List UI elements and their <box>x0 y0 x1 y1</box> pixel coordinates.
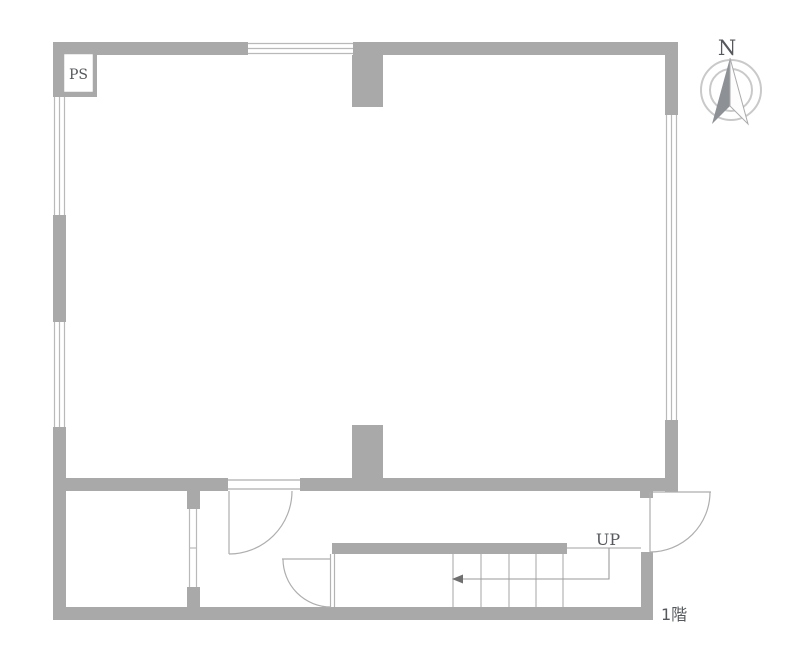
wall-right-top <box>665 42 678 115</box>
compass-rose: N <box>701 36 761 124</box>
wall-small-room-lower <box>187 587 200 607</box>
pipe-shaft: PS <box>63 53 94 93</box>
staircase: UP <box>331 530 642 607</box>
floor-plan: PS <box>0 0 787 651</box>
pillar-bottom <box>352 425 383 478</box>
window-right <box>667 115 677 420</box>
north-label: N <box>718 36 736 60</box>
sliding-door-small-room <box>190 509 197 587</box>
interior-walls <box>66 55 678 607</box>
wall-left-mid <box>53 215 66 322</box>
up-label: UP <box>596 530 620 549</box>
entrance-door <box>650 492 711 552</box>
wall-small-room-upper <box>187 491 200 509</box>
staircase-door-swing <box>283 559 331 607</box>
entrance-door-swing <box>650 492 710 552</box>
compass-needle-dark-icon <box>712 58 730 124</box>
pillar-top <box>352 55 383 107</box>
wall-bottom <box>53 607 653 620</box>
window-top <box>248 44 353 54</box>
main-room-door-swing <box>229 491 292 554</box>
main-room-door <box>228 480 300 554</box>
stair-treads <box>453 554 563 607</box>
wall-left-bottom <box>53 427 66 620</box>
wall-entrance-stub <box>641 552 653 620</box>
stair-top-wall <box>332 543 567 554</box>
compass-needle-light-icon <box>730 58 748 124</box>
outer-walls <box>53 42 678 620</box>
floor-label: 1階 <box>661 605 687 624</box>
staircase-door <box>282 559 331 607</box>
wall-top-right-segment <box>353 42 678 55</box>
pipe-shaft-label: PS <box>69 67 88 83</box>
wall-corridor-left <box>66 478 228 491</box>
wall-corridor-right <box>300 478 678 491</box>
up-arrow-head-icon <box>452 575 463 584</box>
window-left-upper <box>55 97 65 215</box>
window-left-lower <box>55 322 65 427</box>
